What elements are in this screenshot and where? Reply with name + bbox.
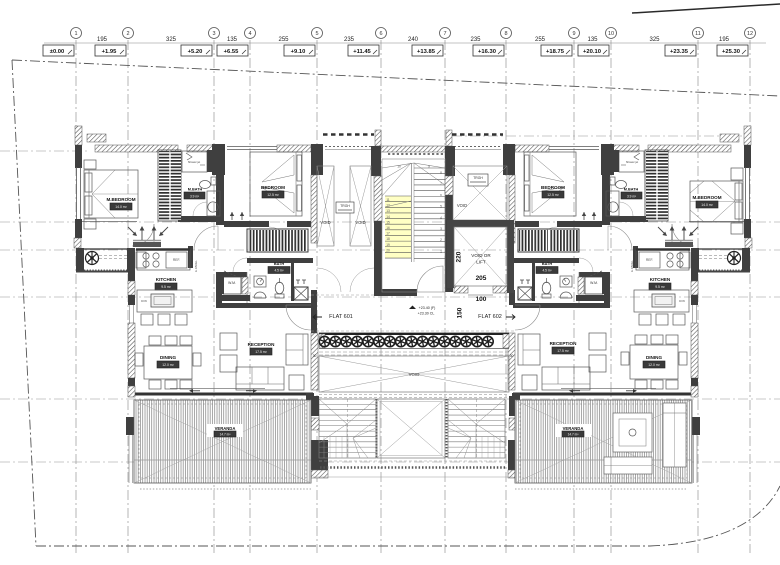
svg-text:+11.45: +11.45 bbox=[353, 49, 371, 55]
svg-text:BEDROOM: BEDROOM bbox=[541, 185, 565, 190]
svg-text:12.0 m²: 12.0 m² bbox=[648, 363, 660, 367]
svg-text:+18.75: +18.75 bbox=[546, 49, 565, 55]
svg-text:255: 255 bbox=[278, 37, 289, 43]
svg-text:2: 2 bbox=[126, 31, 129, 37]
svg-text:8: 8 bbox=[440, 171, 442, 175]
svg-text:12.0 m²: 12.0 m² bbox=[162, 363, 174, 367]
svg-text:VOID: VOID bbox=[409, 372, 420, 377]
svg-text:M.BEDROOM: M.BEDROOM bbox=[106, 197, 135, 202]
svg-text:3.9 m²: 3.9 m² bbox=[190, 195, 199, 199]
svg-text:30: 30 bbox=[510, 354, 514, 358]
svg-text:3: 3 bbox=[212, 31, 215, 37]
svg-text:+16.30: +16.30 bbox=[478, 49, 496, 55]
svg-text:195: 195 bbox=[719, 37, 730, 43]
svg-text:16: 16 bbox=[386, 226, 390, 230]
svg-text:4: 4 bbox=[440, 216, 442, 220]
svg-text:3: 3 bbox=[440, 227, 442, 231]
svg-text:+23.30 CL: +23.30 CL bbox=[418, 312, 435, 316]
svg-text:7: 7 bbox=[443, 31, 446, 37]
svg-text:DINING: DINING bbox=[160, 355, 177, 360]
svg-text:LIFT: LIFT bbox=[476, 260, 486, 265]
svg-text:17: 17 bbox=[386, 232, 390, 236]
svg-text:14.0 m²: 14.0 m² bbox=[701, 203, 713, 207]
svg-text:11: 11 bbox=[695, 31, 701, 37]
svg-text:FLAT 601: FLAT 601 bbox=[329, 314, 353, 320]
svg-text:E.PANEL: E.PANEL bbox=[630, 260, 634, 272]
svg-text:4: 4 bbox=[248, 31, 251, 37]
svg-text:BATH: BATH bbox=[274, 262, 285, 266]
svg-text:14.7 m²: 14.7 m² bbox=[568, 433, 579, 437]
svg-text:W.M.: W.M. bbox=[228, 281, 236, 285]
svg-text:VERANDA: VERANDA bbox=[563, 426, 584, 431]
svg-text:KITCHEN: KITCHEN bbox=[650, 277, 671, 282]
svg-text:BEDROOM: BEDROOM bbox=[261, 185, 285, 190]
svg-text:TRGH: TRGH bbox=[473, 176, 483, 180]
svg-text:255: 255 bbox=[535, 37, 546, 43]
svg-text:5: 5 bbox=[315, 31, 318, 37]
svg-text:325: 325 bbox=[649, 37, 660, 43]
svg-text:+25.30: +25.30 bbox=[722, 49, 740, 55]
svg-text:135: 135 bbox=[587, 37, 598, 43]
svg-text:7: 7 bbox=[440, 182, 442, 186]
svg-text:12: 12 bbox=[747, 31, 753, 37]
svg-text:M.BATH: M.BATH bbox=[624, 188, 639, 192]
svg-text:15: 15 bbox=[386, 220, 390, 224]
svg-text:RECEPTION: RECEPTION bbox=[248, 342, 275, 347]
svg-text:4.5 m²: 4.5 m² bbox=[542, 269, 551, 273]
svg-text:FLAT 602: FLAT 602 bbox=[478, 314, 502, 320]
svg-text:VOID: VOID bbox=[457, 203, 467, 208]
svg-text:17.5 m²: 17.5 m² bbox=[255, 350, 267, 354]
svg-text:205: 205 bbox=[476, 275, 487, 282]
svg-text:2: 2 bbox=[440, 238, 442, 242]
svg-text:135: 135 bbox=[227, 37, 238, 43]
svg-text:8: 8 bbox=[504, 31, 507, 37]
svg-text:12: 12 bbox=[386, 204, 390, 208]
svg-text:100: 100 bbox=[476, 296, 487, 303]
svg-text:+13.85: +13.85 bbox=[417, 49, 436, 55]
svg-text:Shower jet: Shower jet bbox=[188, 160, 201, 164]
svg-text:150: 150 bbox=[457, 307, 464, 318]
svg-text:14.0 m²: 14.0 m² bbox=[115, 205, 127, 209]
svg-text:REF.: REF. bbox=[646, 258, 653, 262]
svg-text:1: 1 bbox=[440, 249, 442, 253]
svg-text:9: 9 bbox=[428, 165, 430, 169]
svg-text:M.BATH: M.BATH bbox=[188, 188, 203, 192]
svg-text:9.5 m²: 9.5 m² bbox=[655, 285, 665, 289]
svg-text:M.BEDROOM: M.BEDROOM bbox=[692, 195, 721, 200]
svg-text:DINING: DINING bbox=[646, 355, 663, 360]
svg-text:325: 325 bbox=[166, 37, 177, 43]
svg-text:VOID OR: VOID OR bbox=[471, 253, 491, 258]
svg-text:RECEPTION: RECEPTION bbox=[550, 341, 577, 346]
svg-text:20: 20 bbox=[386, 248, 390, 252]
svg-text:VOID: VOID bbox=[320, 220, 330, 225]
svg-text:10: 10 bbox=[608, 31, 614, 37]
svg-text:4.5 m²: 4.5 m² bbox=[274, 269, 283, 273]
svg-text:220: 220 bbox=[456, 251, 463, 262]
svg-text:18: 18 bbox=[386, 237, 390, 241]
svg-text:195: 195 bbox=[97, 37, 108, 43]
svg-text:E.PANEL: E.PANEL bbox=[194, 260, 198, 272]
svg-text:REF.: REF. bbox=[173, 258, 180, 262]
svg-text:+1.95: +1.95 bbox=[102, 49, 117, 55]
svg-text:17.5 m²: 17.5 m² bbox=[557, 349, 569, 353]
svg-text:10: 10 bbox=[397, 165, 401, 169]
svg-text:13: 13 bbox=[386, 209, 390, 213]
svg-text:14.7 m²: 14.7 m² bbox=[220, 433, 231, 437]
svg-text:KITCHEN: KITCHEN bbox=[156, 277, 177, 282]
svg-text:30: 30 bbox=[313, 354, 317, 358]
svg-text:235: 235 bbox=[470, 37, 481, 43]
svg-text:TRGH: TRGH bbox=[340, 204, 350, 208]
svg-text:+23.35: +23.35 bbox=[670, 49, 689, 55]
svg-text:6: 6 bbox=[379, 31, 382, 37]
svg-text:+9.10: +9.10 bbox=[291, 49, 306, 55]
svg-text:+20.10: +20.10 bbox=[583, 49, 601, 55]
svg-text:±0.00: ±0.00 bbox=[50, 49, 64, 55]
svg-text:12.5 m²: 12.5 m² bbox=[267, 193, 279, 197]
svg-text:12.5 m²: 12.5 m² bbox=[547, 193, 559, 197]
svg-text:19: 19 bbox=[386, 243, 390, 247]
svg-text:6: 6 bbox=[440, 193, 442, 197]
svg-text:9: 9 bbox=[572, 31, 575, 37]
svg-text:BATH: BATH bbox=[542, 262, 553, 266]
svg-text:+6.55: +6.55 bbox=[224, 49, 239, 55]
svg-text:+5.20: +5.20 bbox=[188, 49, 203, 55]
svg-text:5: 5 bbox=[440, 205, 442, 209]
svg-text:+23.40 (F): +23.40 (F) bbox=[419, 306, 436, 310]
svg-text:235: 235 bbox=[344, 37, 355, 43]
svg-text:D/W: D/W bbox=[141, 299, 147, 303]
svg-text:240: 240 bbox=[408, 37, 419, 43]
svg-text:1: 1 bbox=[74, 31, 77, 37]
svg-text:VERANDA: VERANDA bbox=[215, 426, 236, 431]
svg-text:W.M.: W.M. bbox=[590, 281, 598, 285]
svg-text:VOID: VOID bbox=[355, 220, 365, 225]
svg-text:11: 11 bbox=[386, 198, 390, 202]
svg-text:9.5 m²: 9.5 m² bbox=[161, 285, 171, 289]
svg-text:14: 14 bbox=[386, 215, 390, 219]
svg-text:Shower jet: Shower jet bbox=[626, 160, 639, 164]
svg-text:3.9 m²: 3.9 m² bbox=[627, 195, 636, 199]
svg-text:D/W: D/W bbox=[679, 299, 685, 303]
